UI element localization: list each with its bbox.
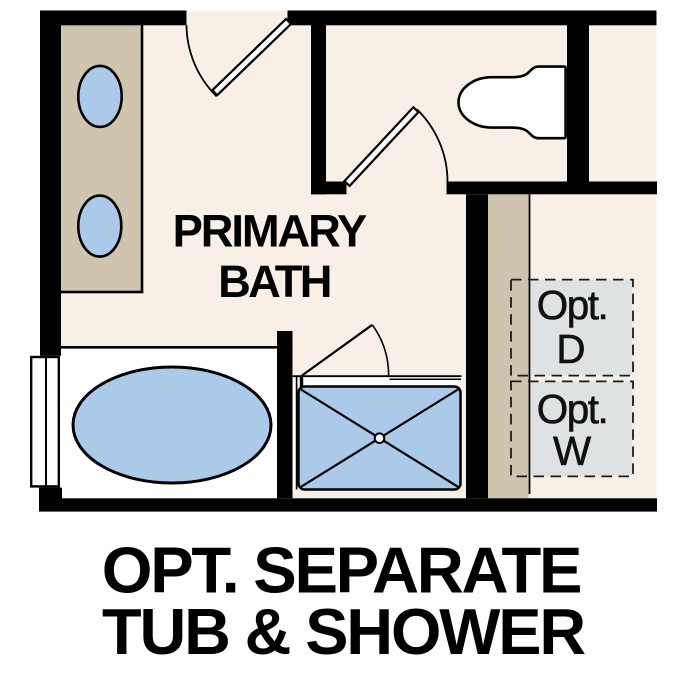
svg-text:D: D <box>556 326 585 372</box>
svg-text:BATH: BATH <box>218 256 330 307</box>
svg-text:PRIMARY: PRIMARY <box>173 205 367 256</box>
svg-text:W: W <box>553 428 591 474</box>
svg-text:Opt.: Opt. <box>537 282 608 328</box>
svg-text:Opt.: Opt. <box>537 386 608 432</box>
svg-text:TUB & SHOWER: TUB & SHOWER <box>102 595 585 668</box>
